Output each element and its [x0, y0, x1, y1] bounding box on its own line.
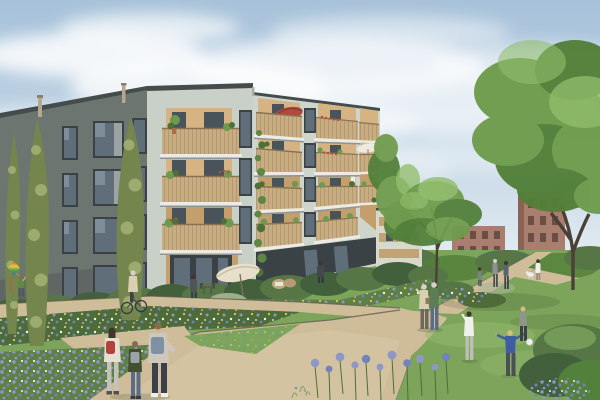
front-facade-right-part — [252, 87, 380, 292]
architectural-rendering-image — [0, 0, 600, 400]
elderly-man — [429, 282, 439, 330]
balcony-bay — [160, 108, 242, 255]
scene-canvas — [0, 0, 600, 400]
white-ball — [526, 339, 533, 346]
front-window-column — [239, 110, 252, 244]
balcony-column-2 — [314, 103, 360, 245]
